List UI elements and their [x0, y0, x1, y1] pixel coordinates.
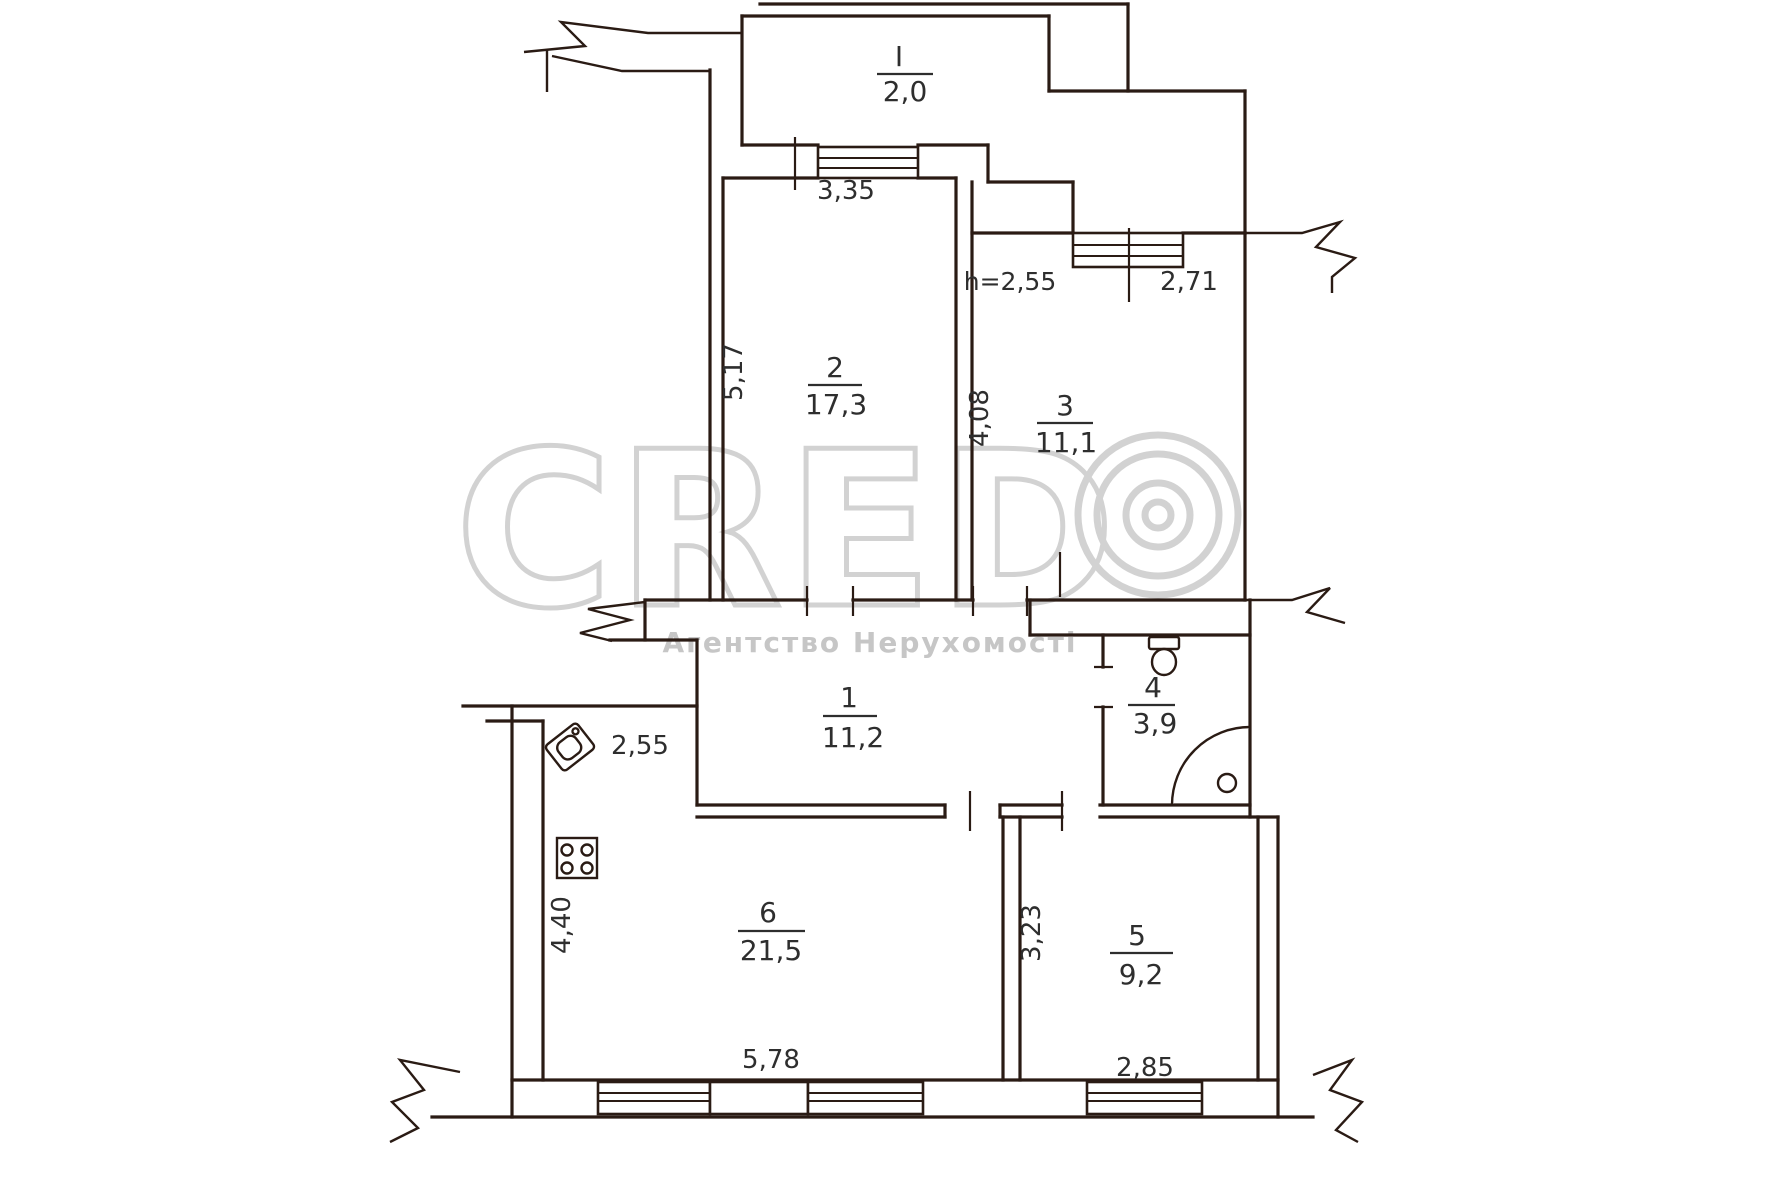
room2-area: 17,3 [805, 388, 867, 421]
label-room5: 5 9,2 [1110, 919, 1173, 991]
hallway-number: 1 [840, 681, 858, 714]
room3-area: 11,1 [1035, 426, 1097, 459]
dim-room5-depth: 3,23 [1017, 904, 1047, 962]
bathroom-area: 3,9 [1133, 707, 1178, 740]
balcony-door-panel [710, 1082, 808, 1114]
bathroom-number: 4 [1144, 671, 1162, 704]
shower-icon [1172, 727, 1250, 805]
dim-kitchen-top: 2,55 [611, 731, 669, 761]
dim-balcony-window: 3,35 [817, 176, 875, 206]
label-room2: 2 17,3 [805, 351, 867, 421]
dim-room5-width: 2,85 [1116, 1053, 1174, 1083]
dim-room3-window: 2,71 [1160, 267, 1218, 297]
break-right-top [1245, 222, 1355, 293]
kitchen-window-right [808, 1082, 923, 1114]
hallway-area: 11,2 [822, 721, 884, 754]
label-hallway: 1 11,2 [822, 681, 884, 754]
break-bottom-right [1313, 1060, 1362, 1142]
dim-ceiling-height: h=2,55 [964, 267, 1056, 296]
dim-kitchen-depth: 4,40 [547, 896, 577, 954]
balcony-number: I [895, 40, 903, 73]
dim-room2-depth: 5,17 [719, 343, 749, 401]
watermark-brand-text: CRED [455, 405, 1120, 656]
dim-room3-depth: 4,08 [965, 389, 995, 447]
balcony-window [818, 147, 918, 178]
label-bathroom: 4 3,9 [1128, 671, 1177, 740]
room5-window [1087, 1082, 1202, 1114]
kitchen-sink-icon [544, 722, 595, 772]
room5-number: 5 [1128, 919, 1146, 952]
kitchen-area: 21,5 [740, 934, 802, 967]
room5-area: 9,2 [1119, 958, 1164, 991]
room3-number: 3 [1056, 389, 1074, 422]
kitchen-window-left [598, 1082, 710, 1114]
stove-icon [557, 838, 597, 878]
watermark-subtitle: Агентство Нерухомості [663, 626, 1078, 659]
dim-kitchen-width: 5,78 [742, 1045, 800, 1075]
break-bottom-left [390, 1060, 460, 1142]
toilet-icon [1149, 637, 1179, 675]
balcony-area: 2,0 [883, 75, 928, 108]
kitchen-number: 6 [759, 896, 777, 929]
watermark: CRED Агентство Нерухомості [455, 405, 1238, 659]
label-room3: 3 11,1 [1035, 389, 1097, 459]
label-kitchen: 6 21,5 [738, 896, 805, 967]
label-balcony: I 2,0 [877, 40, 933, 108]
floor-plan-page: CRED Агентство Нерухомості [0, 0, 1772, 1181]
break-right-middle [1245, 588, 1345, 623]
room2-number: 2 [826, 351, 844, 384]
floor-plan-drawing: CRED Агентство Нерухомості [0, 0, 1772, 1181]
